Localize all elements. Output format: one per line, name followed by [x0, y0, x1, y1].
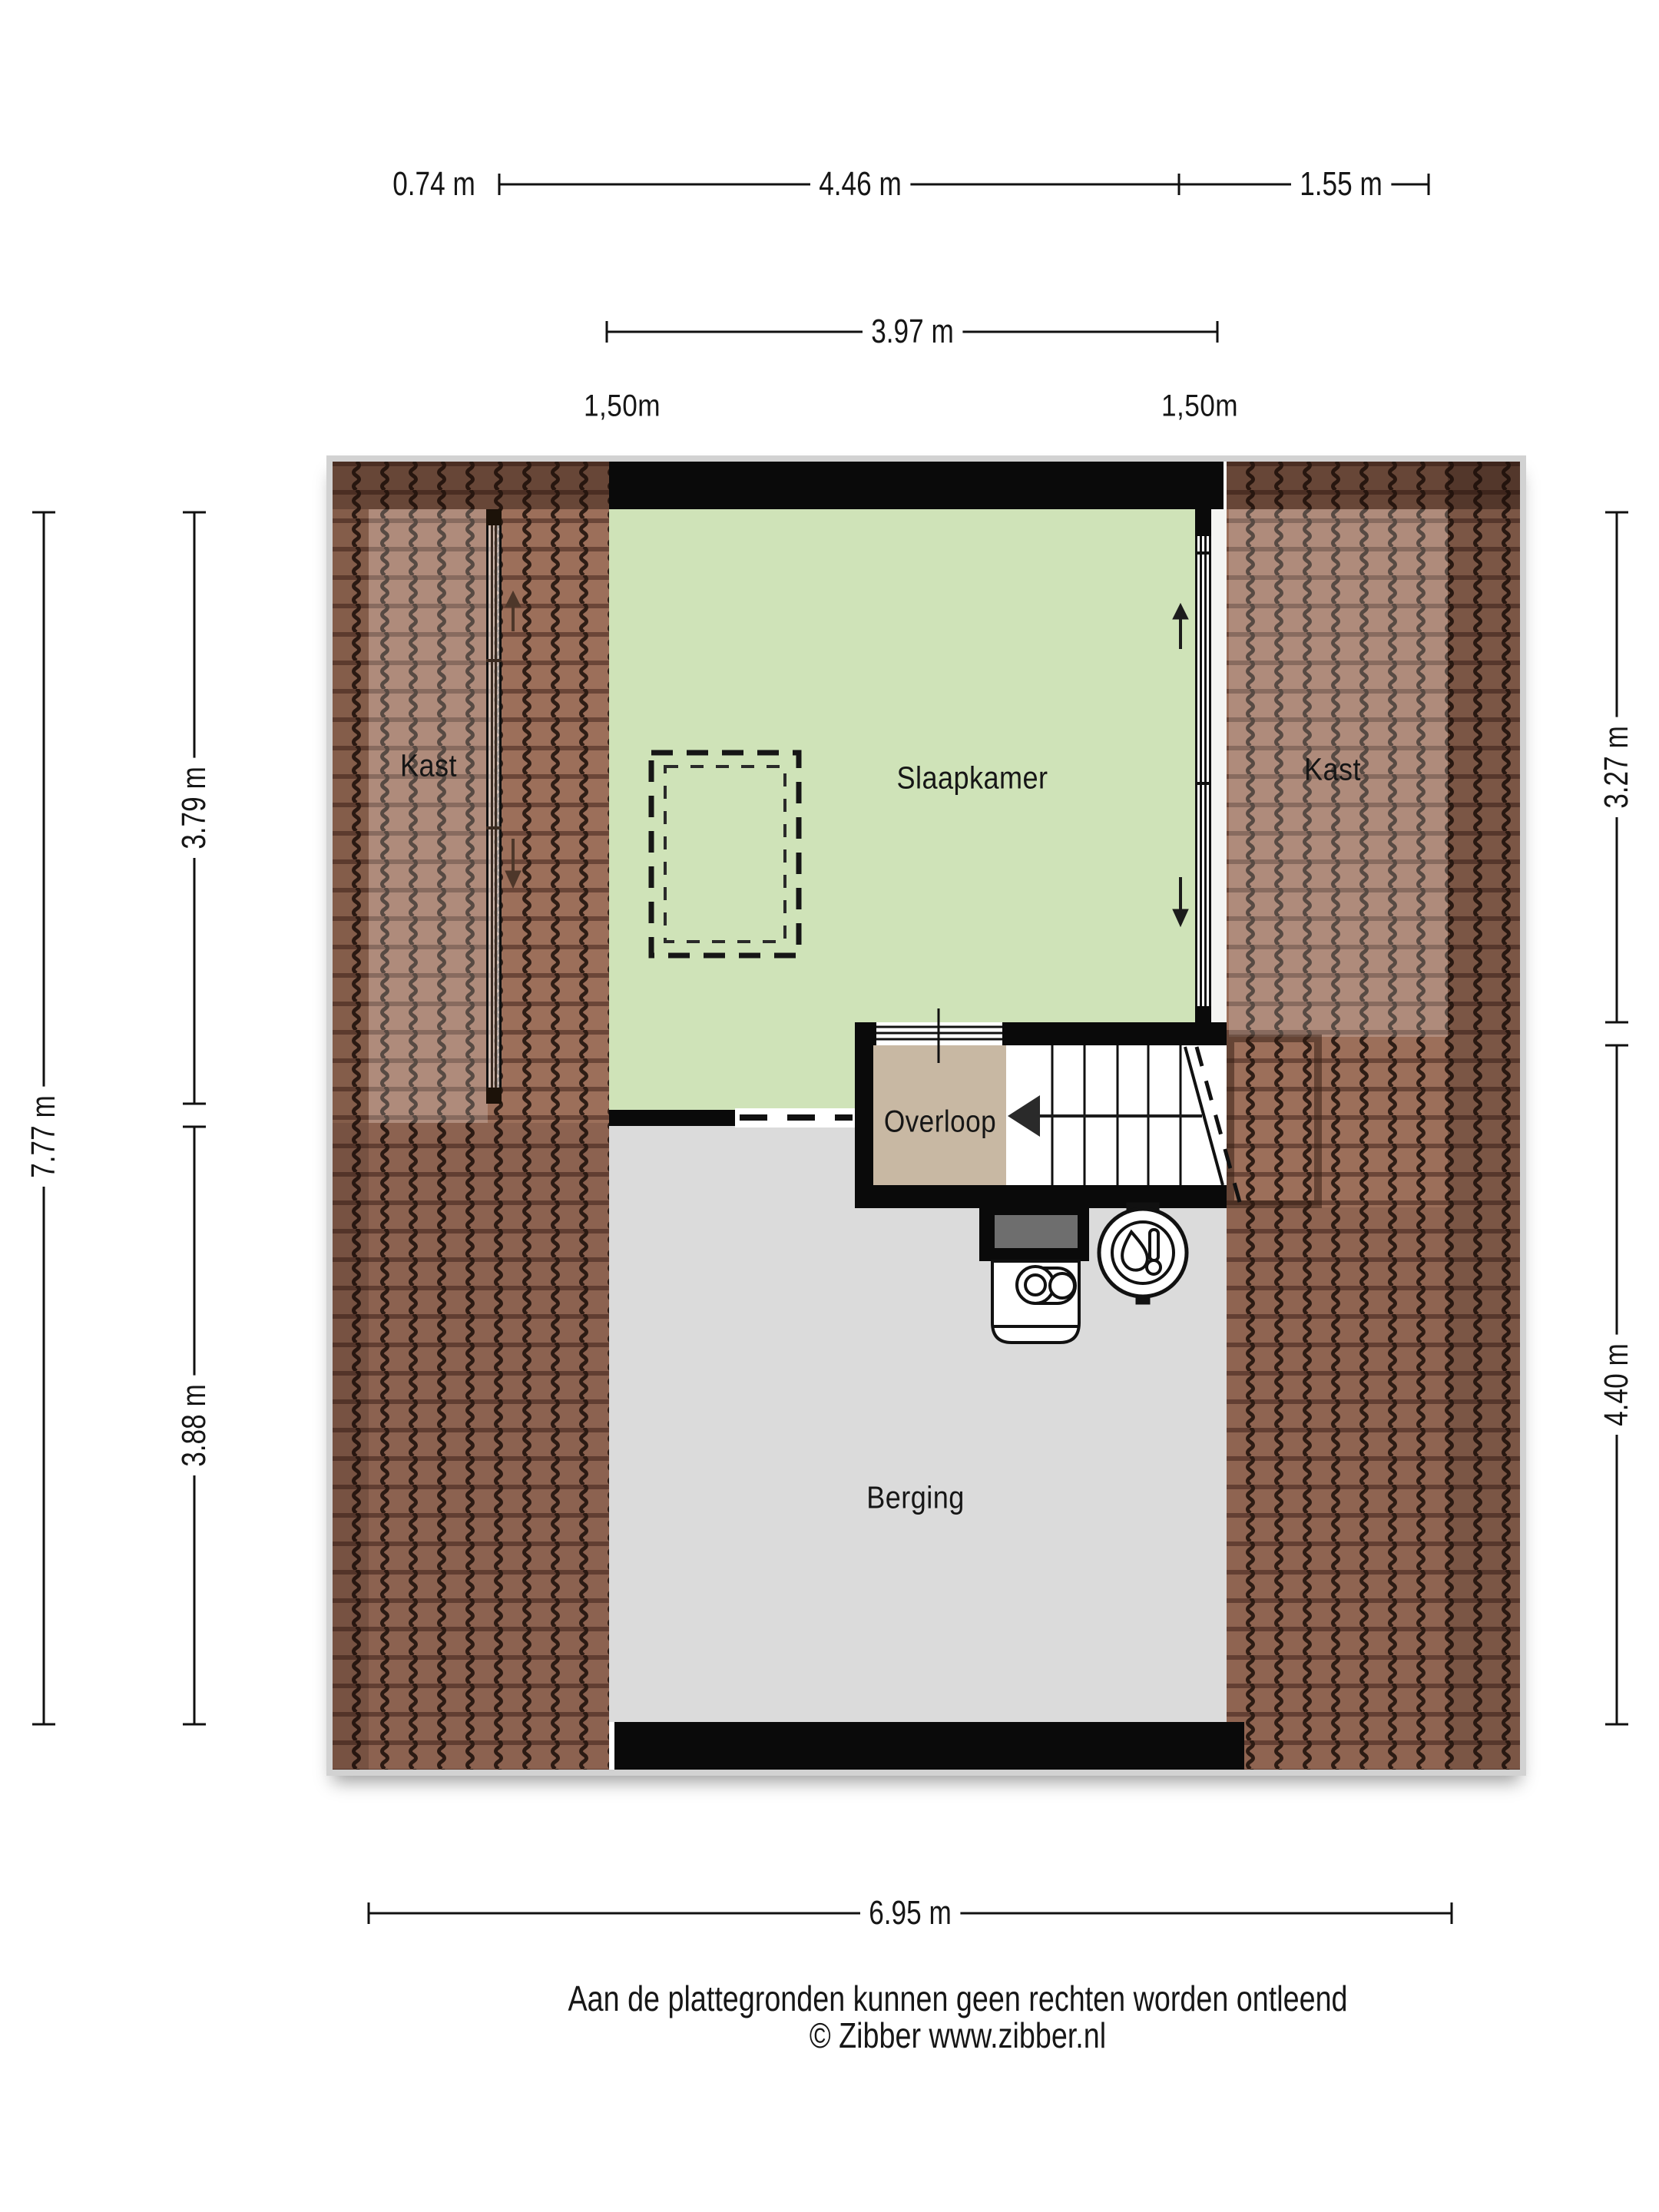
dim-top-2: 1.55 m: [1291, 165, 1391, 204]
staircase: [1006, 1045, 1227, 1185]
wall-overloop-bottom: [855, 1185, 1227, 1208]
room-berging: [609, 1126, 1227, 1722]
headroom-label-right: 1,50m: [1161, 389, 1238, 424]
duct-shaft: [995, 1215, 1078, 1248]
room-slaapkamer: [609, 509, 1195, 1110]
track-left-bottom-cap: [486, 1088, 502, 1104]
dim-top-1: 4.46 m: [810, 165, 910, 204]
track-left: [486, 525, 502, 1088]
dim-top-0: 0.74 m: [384, 165, 484, 204]
window-right-top-cap: [1195, 509, 1211, 536]
room-label-slaapkamer: Slaapkamer: [897, 760, 1048, 796]
wall-bottom: [614, 1722, 1244, 1770]
room-label-kast-right: Kast: [1304, 752, 1361, 788]
room-label-berging: Berging: [866, 1480, 964, 1516]
room-label-kast-left: Kast: [400, 748, 457, 784]
dim-left-total: 7.77 m: [25, 1087, 63, 1187]
opening-dashed: [735, 1108, 855, 1128]
window-right-outer-sill: [1211, 509, 1227, 1022]
room-label-overloop: Overloop: [884, 1105, 996, 1140]
track-left-top-cap: [486, 509, 502, 525]
dim-top-row2: 3.97 m: [863, 313, 962, 351]
headroom-label-left: 1,50m: [584, 389, 661, 424]
footer-copyright: © Zibber www.zibber.nl: [810, 2015, 1106, 2056]
roof-left-lower-shade: [333, 1123, 609, 1770]
interior-window-hatched: [876, 1022, 1002, 1045]
window-right: [1195, 536, 1211, 1006]
roof-right-edge-shade: [1448, 462, 1520, 1770]
dim-left-seg-1: 3.88 m: [175, 1376, 214, 1475]
roof-left-ridge-band: [333, 462, 609, 509]
wall-top: [609, 462, 1224, 509]
dim-right-seg-0: 3.27 m: [1598, 717, 1636, 817]
floorplan-page: 0.74 m 4.46 m 1.55 m 3.97 m 1,50m 1,50m …: [0, 0, 1659, 2212]
dim-right-seg-1: 4.40 m: [1598, 1335, 1636, 1435]
closet-left-floor-overlay: [369, 509, 488, 1123]
window-right-bottom-cap: [1195, 1006, 1211, 1022]
footer-disclaimer: Aan de plattegronden kunnen geen rechten…: [568, 1978, 1347, 2019]
wall-overloop-left: [855, 1022, 873, 1208]
dim-left-seg-0: 3.79 m: [175, 758, 214, 858]
dim-bottom: 6.95 m: [860, 1894, 960, 1932]
wall-slaapkamer-berging: [609, 1110, 735, 1126]
roof-right-lower-shade: [1227, 1207, 1448, 1770]
